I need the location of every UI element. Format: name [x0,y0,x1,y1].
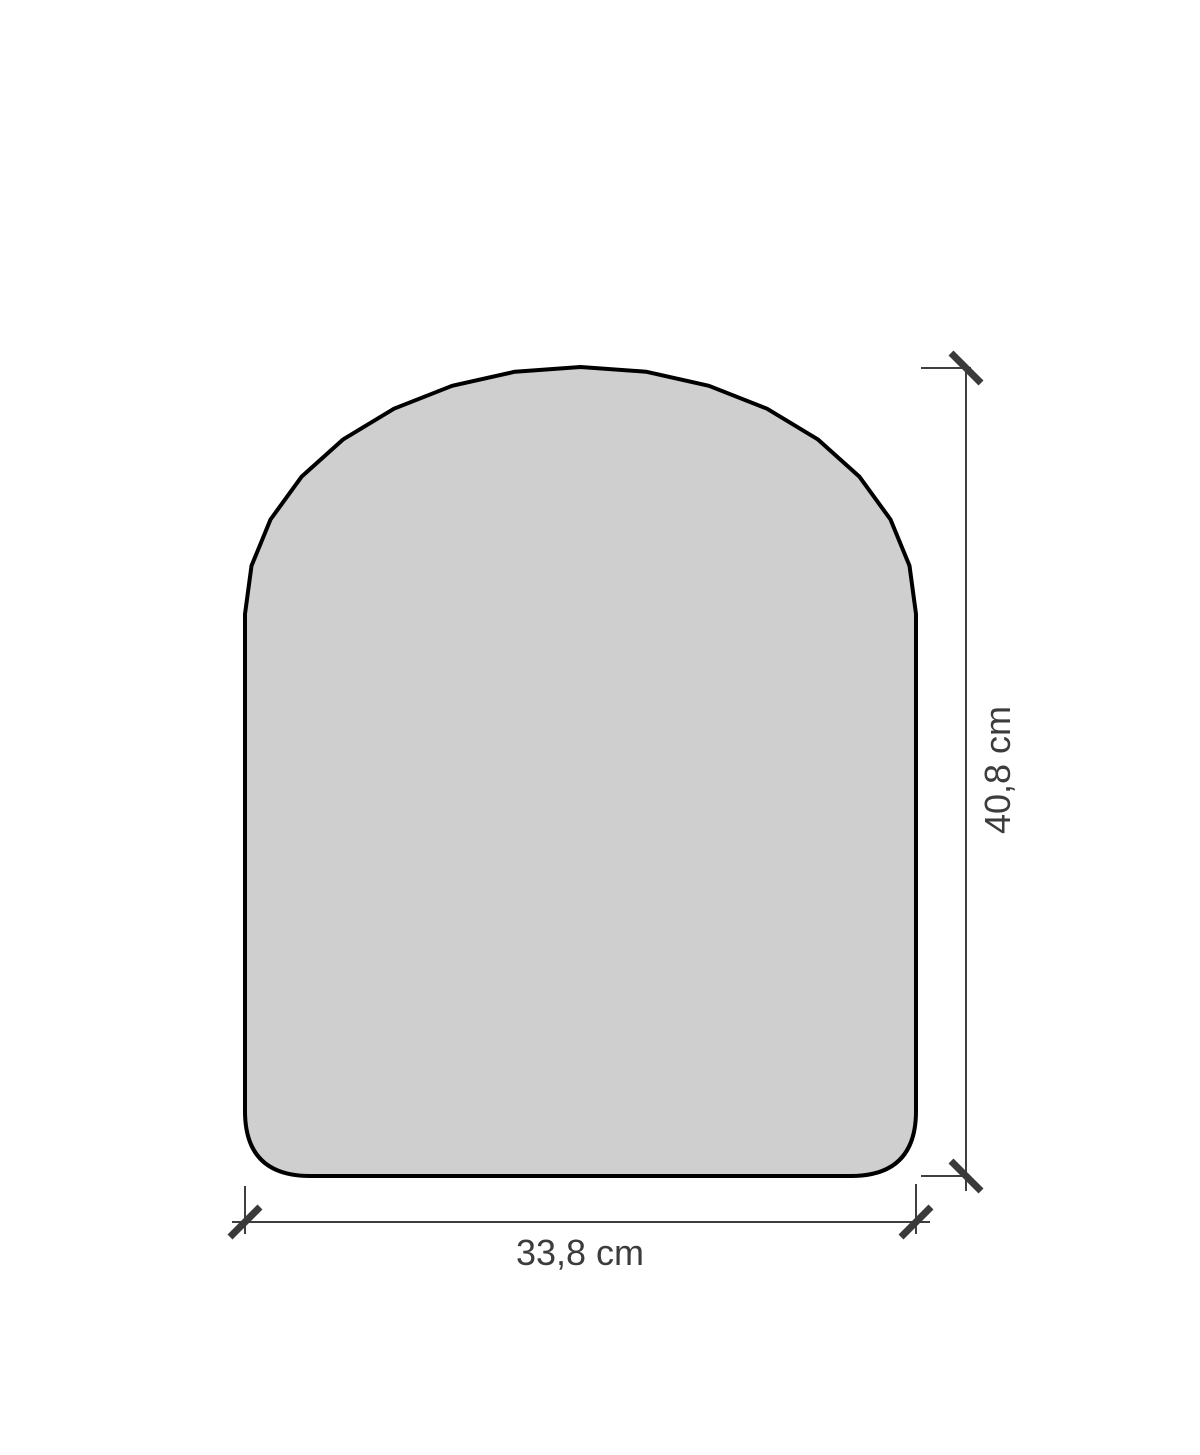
drawing-canvas: 40,8 cm 33,8 cm [0,0,1200,1455]
height-dimension-label: 40,8 cm [977,706,1018,834]
technical-drawing: 40,8 cm 33,8 cm [0,0,1200,1455]
height-dimension [921,368,971,1191]
width-dimension-label: 33,8 cm [516,1232,644,1273]
panel-shape [245,367,916,1176]
width-dimension [232,1184,930,1234]
